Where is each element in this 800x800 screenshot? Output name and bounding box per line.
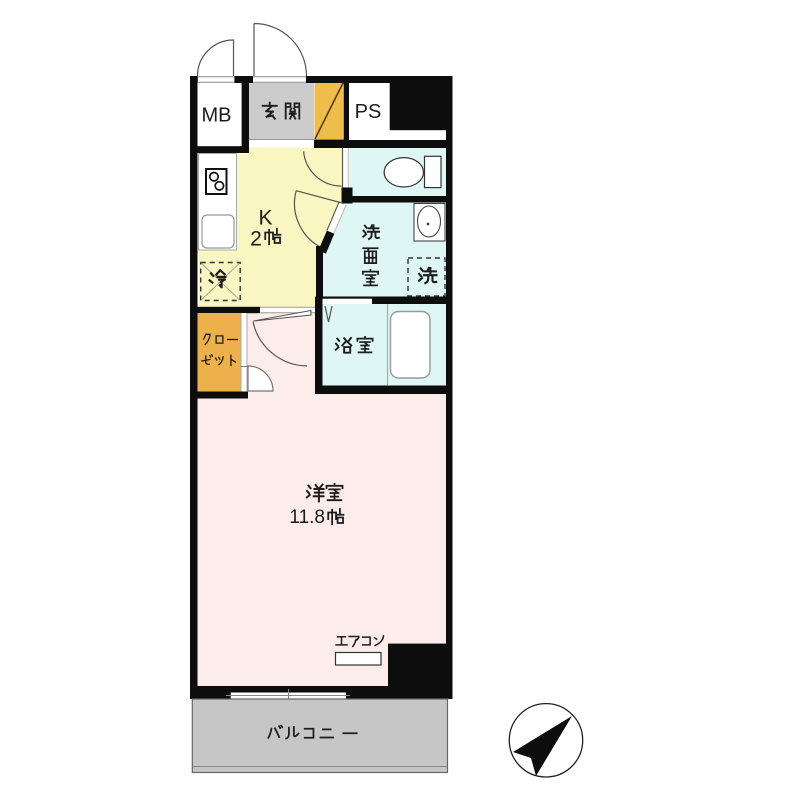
svg-text:PS: PS (355, 101, 382, 123)
svg-text:2: 2 (250, 228, 262, 251)
svg-text:K: K (258, 207, 272, 230)
svg-text:MB: MB (202, 105, 232, 127)
svg-text:11.8: 11.8 (289, 507, 325, 528)
